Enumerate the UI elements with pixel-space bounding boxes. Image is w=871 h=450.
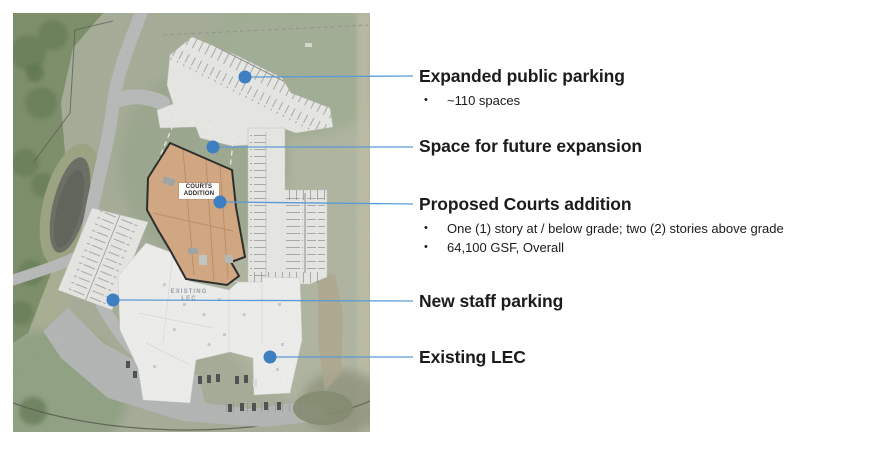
- callout-bullet: • ~110 spaces: [419, 91, 625, 110]
- callout-staff-parking: New staff parking: [419, 291, 563, 312]
- aerial-photo: [13, 13, 370, 432]
- photo-grain: [13, 13, 370, 432]
- aerial-map: [13, 13, 370, 432]
- bullet-icon: •: [419, 238, 447, 257]
- callout-bullet-text: One (1) story at / below grade; two (2) …: [447, 219, 784, 238]
- callout-title: New staff parking: [419, 291, 563, 312]
- bullet-icon: •: [419, 91, 447, 110]
- callout-title: Existing LEC: [419, 347, 526, 368]
- callout-title: Proposed Courts addition: [419, 194, 784, 215]
- existing-lec-map-label: EXISTING LEC: [163, 289, 215, 303]
- bullet-icon: •: [419, 219, 447, 238]
- callout-bullet: • One (1) story at / below grade; two (2…: [419, 219, 784, 238]
- callout-courts-addition: Proposed Courts addition • One (1) story…: [419, 194, 784, 257]
- callout-title: Expanded public parking: [419, 66, 625, 87]
- callout-existing-lec: Existing LEC: [419, 347, 526, 368]
- slide: COURTS ADDITION EXISTING LEC Expanded pu…: [0, 0, 871, 450]
- callout-bullet-text: 64,100 GSF, Overall: [447, 238, 564, 257]
- callout-title: Space for future expansion: [419, 136, 642, 157]
- courts-addition-map-label: COURTS ADDITION: [179, 183, 219, 199]
- callout-expanded-public-parking: Expanded public parking • ~110 spaces: [419, 66, 625, 110]
- callout-bullet-text: ~110 spaces: [447, 91, 520, 110]
- callout-future-expansion: Space for future expansion: [419, 136, 642, 157]
- callout-bullet: • 64,100 GSF, Overall: [419, 238, 784, 257]
